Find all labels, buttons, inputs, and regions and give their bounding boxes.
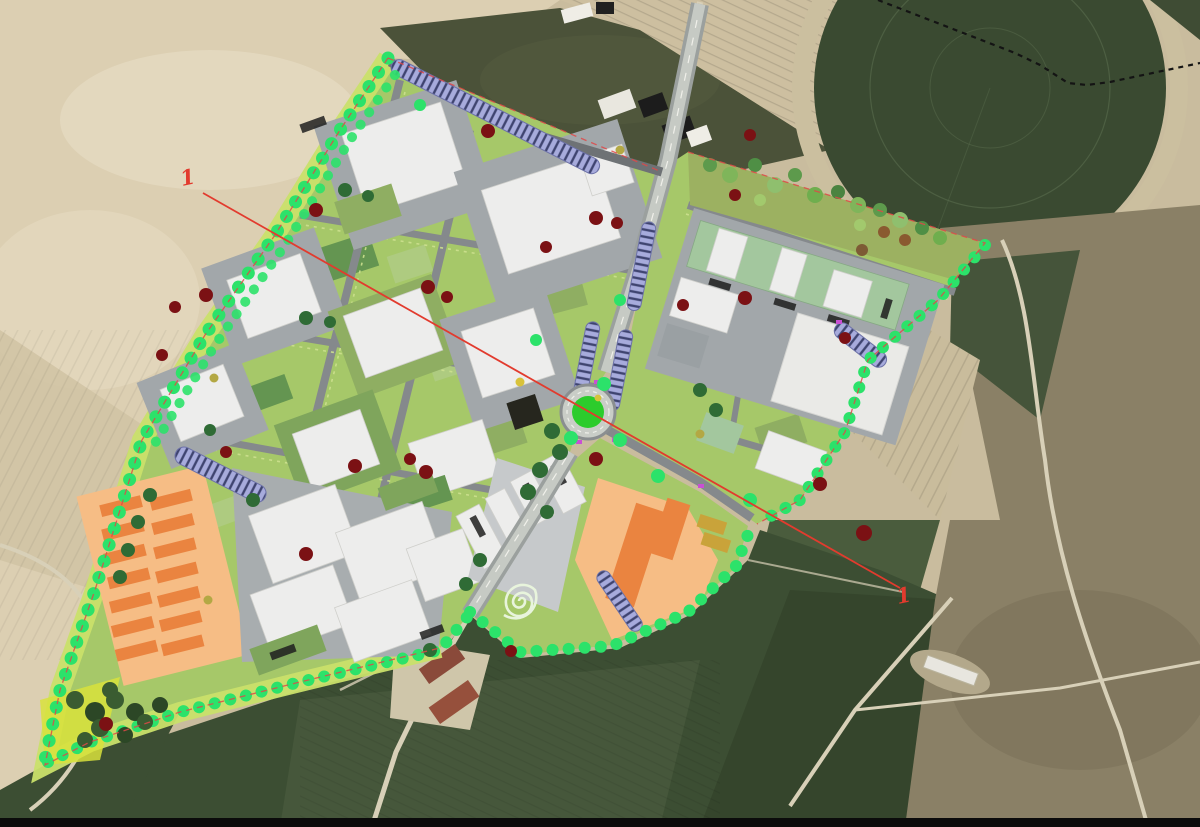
masterplan-aerial-view: 1 1 — [0, 0, 1200, 827]
site-plan-map: 1 1 — [0, 0, 1200, 827]
letterbox-bar — [0, 818, 1200, 827]
